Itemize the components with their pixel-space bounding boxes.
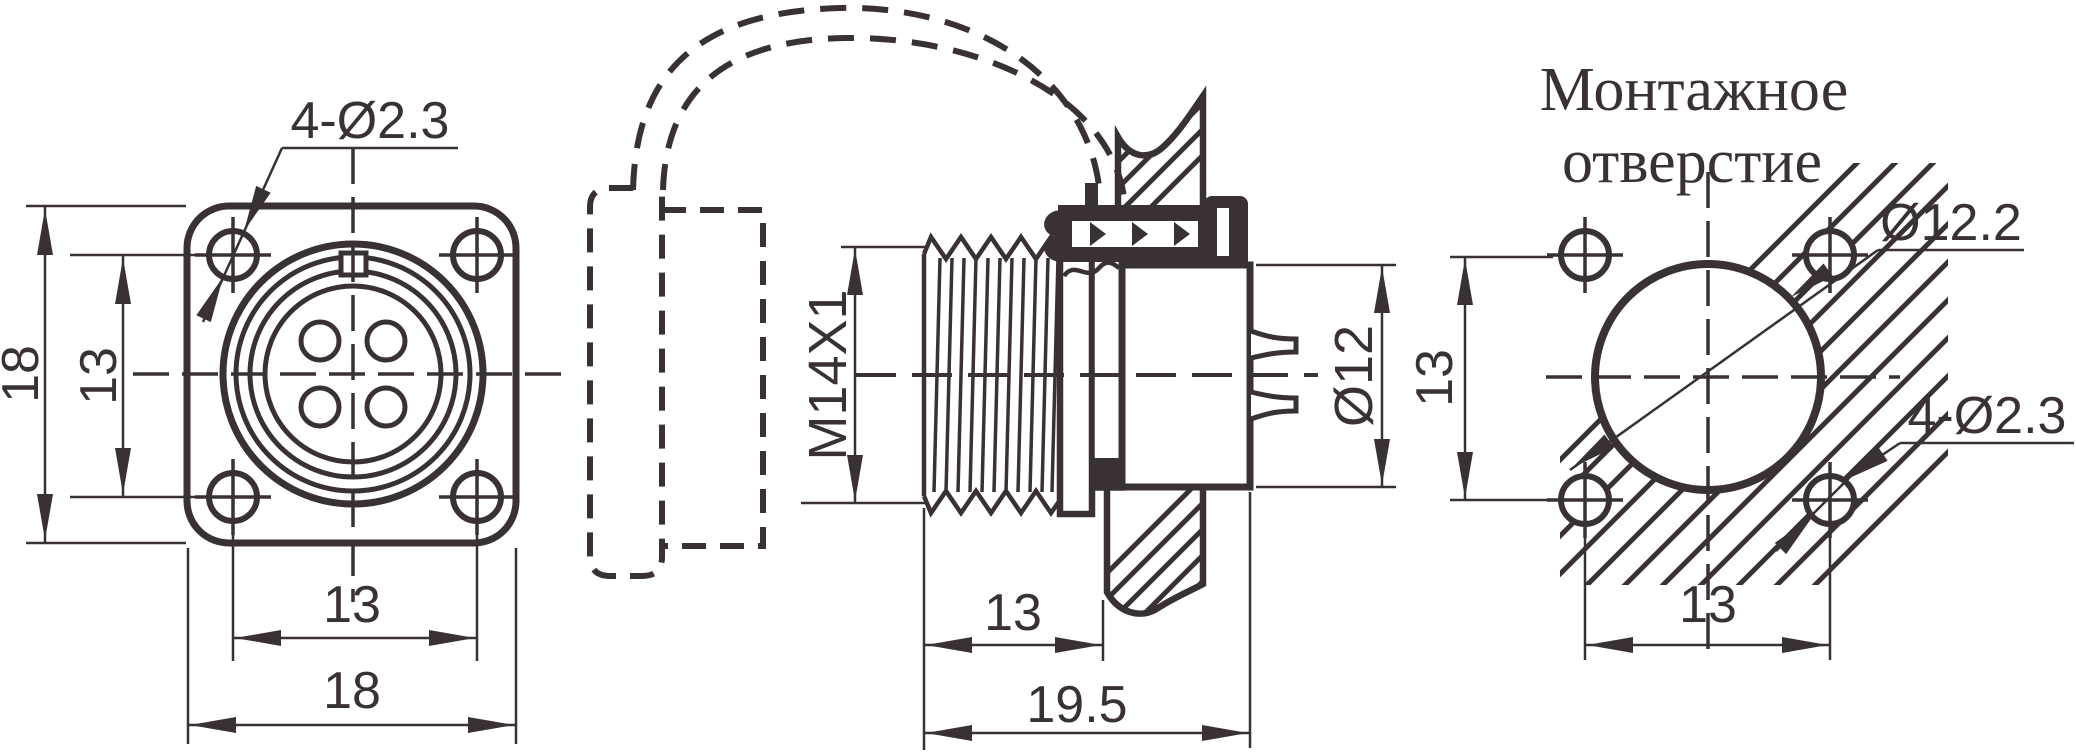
mounting-title-line1: Монтажное xyxy=(1540,56,1848,124)
front-dim-height-outer: 18 xyxy=(0,345,50,403)
pin xyxy=(367,388,405,426)
front-view: 4-Ø2.3 18 13 13 18 xyxy=(0,92,572,744)
thread-bottom-profile xyxy=(924,491,1060,513)
lanyard-post xyxy=(1085,183,1098,207)
seal-plate xyxy=(1092,253,1122,488)
front-dim-height-inner: 13 xyxy=(70,347,128,405)
drawing-canvas: 4-Ø2.3 18 13 13 18 xyxy=(0,0,2076,756)
cap-lanyard xyxy=(633,8,1125,205)
side-view: M14X1 13 19.5 Ø12 xyxy=(590,8,1396,750)
front-hole-callout-label: 4-Ø2.3 xyxy=(291,92,450,150)
technical-drawing-page: 4-Ø2.3 18 13 13 18 xyxy=(0,0,2076,756)
mount-dim-hole-diameter: Ø12.2 xyxy=(1880,194,2022,252)
contact-pin-lower xyxy=(1251,392,1296,419)
clamp-nut-assembly xyxy=(1044,183,1248,268)
flange-plate xyxy=(1060,241,1092,514)
mounting-title-line2: отверстие xyxy=(1562,128,1822,196)
pin xyxy=(301,322,339,360)
mounting-view: Монтажное отверстие Ø12.2 4-Ø2.3 13 13 xyxy=(1400,56,2076,660)
pin xyxy=(301,388,339,426)
mount-dim-horizontal: 13 xyxy=(1679,576,1737,634)
contact-pin-upper xyxy=(1251,331,1296,358)
side-dim-total-length: 19.5 xyxy=(1026,676,1127,734)
mount-holes-callout-label: 4-Ø2.3 xyxy=(1908,387,2067,445)
side-dim-thread-length: 13 xyxy=(984,584,1042,642)
front-dim-width-inner: 13 xyxy=(323,576,381,634)
pin xyxy=(367,322,405,360)
side-dim-body-diameter: Ø12 xyxy=(1324,325,1384,427)
thread-top-profile xyxy=(924,237,1060,259)
front-dim-width-outer: 18 xyxy=(323,662,381,720)
thread-spec-label: M14X1 xyxy=(798,289,858,460)
protective-cap xyxy=(590,188,763,576)
panel-wall-top xyxy=(998,40,1318,230)
mount-dim-vertical: 13 xyxy=(1406,349,1464,407)
